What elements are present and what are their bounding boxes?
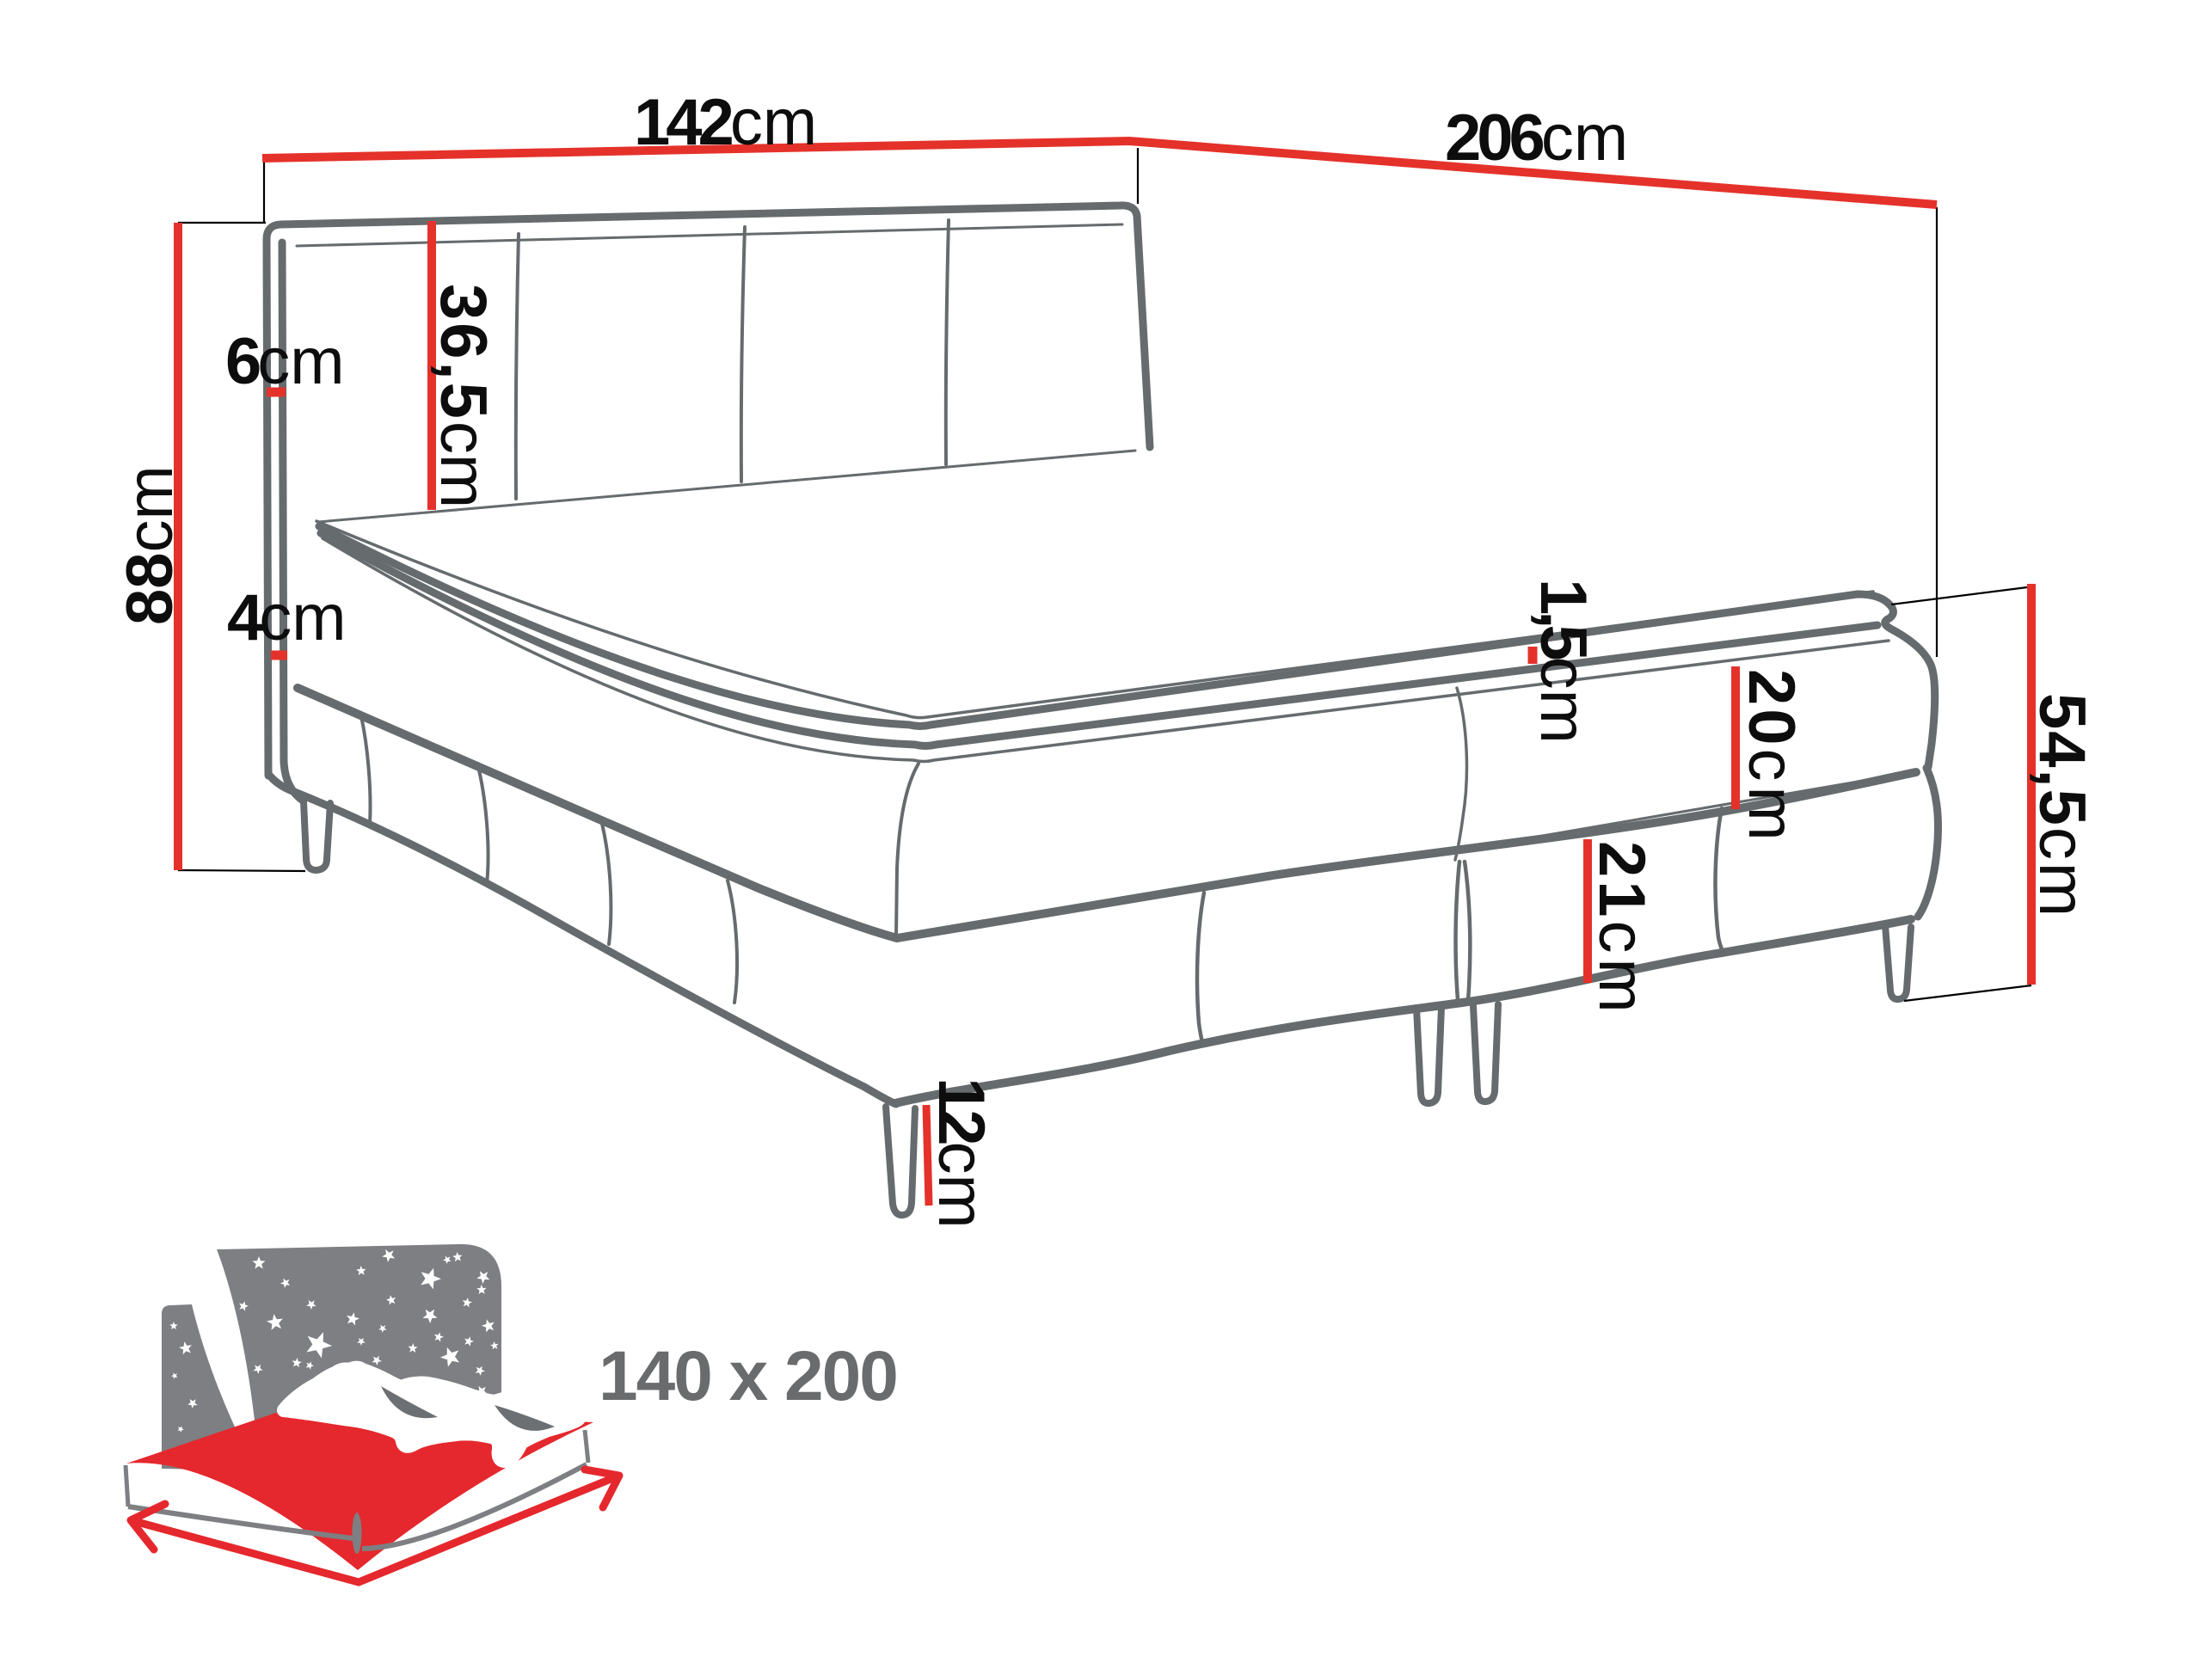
svg-text:206cm: 206cm (1445, 101, 1628, 175)
svg-text:21cm: 21cm (1585, 841, 1658, 1018)
svg-text:20cm: 20cm (1735, 669, 1808, 846)
svg-text:1,5cm: 1,5cm (1527, 579, 1600, 744)
svg-text:54,5cm: 54,5cm (2025, 693, 2098, 919)
svg-text:6cm: 6cm (225, 325, 345, 398)
svg-text:36,5cm: 36,5cm (427, 284, 500, 508)
svg-text:12cm: 12cm (925, 1077, 998, 1229)
svg-text:88cm: 88cm (114, 465, 187, 625)
svg-text:140 x 200: 140 x 200 (599, 1337, 897, 1415)
svg-text:4cm: 4cm (227, 581, 347, 654)
svg-text:142cm: 142cm (634, 86, 817, 159)
